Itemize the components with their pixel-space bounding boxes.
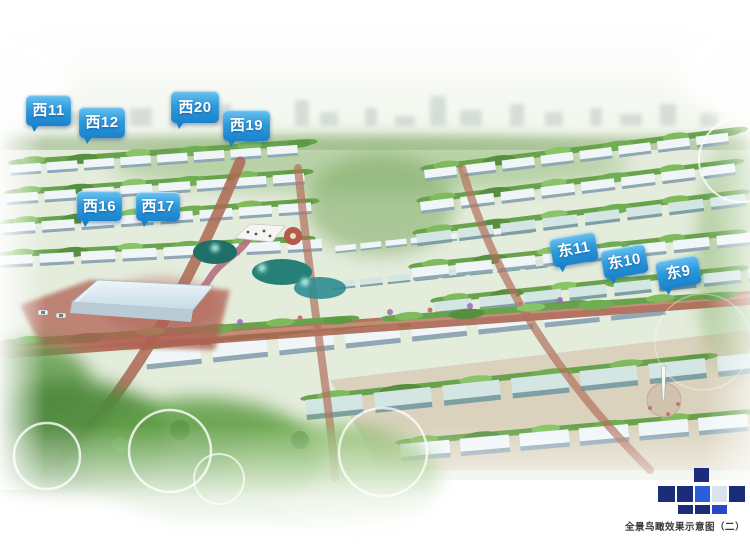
page: 西11 西12 西20 西19 西16 西17 东11 东10 东9 全景鸟瞰效…	[0, 0, 750, 560]
block-label-xi20: 西20	[171, 91, 219, 123]
logo-square	[695, 505, 710, 514]
logo-square	[677, 486, 693, 502]
logo-square	[712, 505, 727, 514]
logo-square	[712, 486, 727, 502]
logo-square	[658, 486, 675, 502]
block-label-xi16: 西16	[77, 191, 122, 221]
logo-square-grid	[657, 467, 749, 517]
site-rendering	[0, 0, 750, 560]
block-label-xi19: 西19	[223, 110, 270, 141]
logo-square	[695, 486, 710, 502]
logo-square	[729, 486, 745, 502]
figure-caption: 全景鸟瞰效果示意图（二）	[625, 519, 745, 533]
block-label-xi17: 西17	[136, 192, 180, 221]
block-label-xi12: 西12	[79, 107, 125, 138]
logo-square	[694, 468, 709, 482]
logo-square	[678, 505, 693, 514]
block-label-xi11: 西11	[26, 95, 71, 126]
